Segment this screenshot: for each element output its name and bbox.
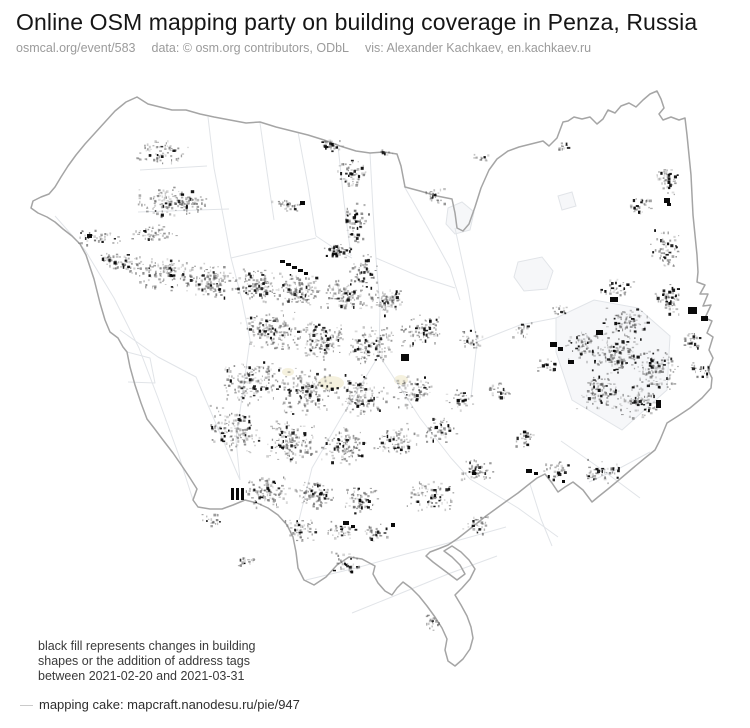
subtitle: osmcal.org/event/583 data: © osm.org con… <box>16 41 697 55</box>
legend-note: black fill represents changes in buildin… <box>38 639 256 684</box>
header: Online OSM mapping party on building cov… <box>16 8 697 55</box>
page-title: Online OSM mapping party on building cov… <box>16 8 697 36</box>
legend-line-1: black fill represents changes in buildin… <box>38 639 256 654</box>
mapping-cake-note: — mapping cake: mapcraft.nanodesu.ru/pie… <box>20 697 300 712</box>
map-canvas <box>0 0 750 728</box>
event-url-text: osmcal.org/event/583 <box>16 41 136 55</box>
dash-marker: — <box>20 697 34 712</box>
legend-line-3: between 2021-02-20 and 2021-03-31 <box>38 669 256 684</box>
mapping-cake-url-text: mapping cake: mapcraft.nanodesu.ru/pie/9… <box>39 697 300 712</box>
data-attribution-text: data: © osm.org contributors, ODbL <box>152 41 350 55</box>
legend-line-2: shapes or the addition of address tags <box>38 654 256 669</box>
vis-attribution-text: vis: Alexander Kachkaev, en.kachkaev.ru <box>365 41 591 55</box>
